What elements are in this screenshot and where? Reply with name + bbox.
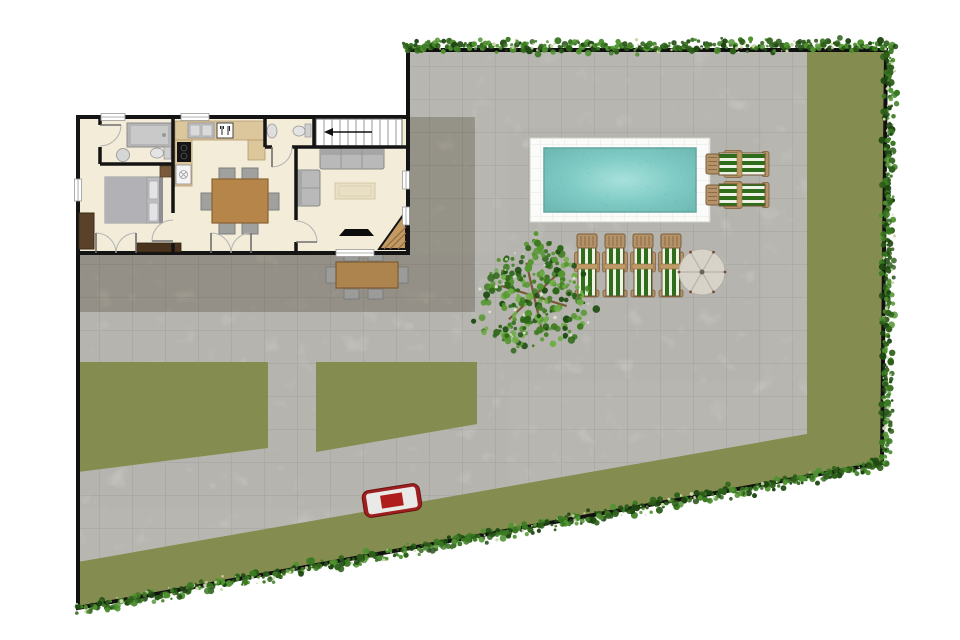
site-plan	[0, 0, 960, 640]
outdoor-chair	[326, 267, 336, 283]
toilet-icon	[151, 148, 164, 158]
washing-machine	[176, 165, 191, 184]
dining-table	[212, 179, 268, 223]
sun-lounger	[706, 151, 769, 178]
sun-lounger	[706, 182, 769, 209]
site-plan-canvas	[0, 0, 960, 640]
wardrobe	[79, 213, 94, 249]
outdoor-chair	[368, 289, 383, 299]
dining-chair	[219, 223, 235, 234]
dining-chair	[268, 193, 279, 210]
toilet-icon	[293, 126, 305, 136]
staircase	[316, 119, 402, 146]
outdoor-chair	[398, 267, 408, 283]
pool-water-sparkle	[544, 148, 696, 212]
dining-chair	[219, 168, 235, 179]
pillow	[149, 203, 158, 221]
dining-chair	[242, 168, 258, 179]
washbasin-icon	[117, 149, 130, 162]
outdoor-chair	[344, 289, 359, 299]
pillow	[149, 181, 158, 199]
swimming-pool	[530, 138, 710, 222]
rug	[335, 183, 375, 199]
sun-lounger	[603, 234, 628, 297]
sun-lounger	[631, 234, 656, 297]
house	[75, 114, 410, 257]
dining-chair	[242, 223, 258, 234]
bedside-table	[160, 166, 172, 177]
parasol	[678, 249, 727, 295]
washbasin-icon	[267, 124, 277, 138]
outdoor-table	[336, 262, 398, 288]
dining-chair	[201, 193, 212, 210]
tv	[339, 229, 374, 236]
parasol-pole	[700, 270, 705, 275]
utensils-sign	[217, 123, 233, 138]
headboard	[159, 177, 163, 223]
